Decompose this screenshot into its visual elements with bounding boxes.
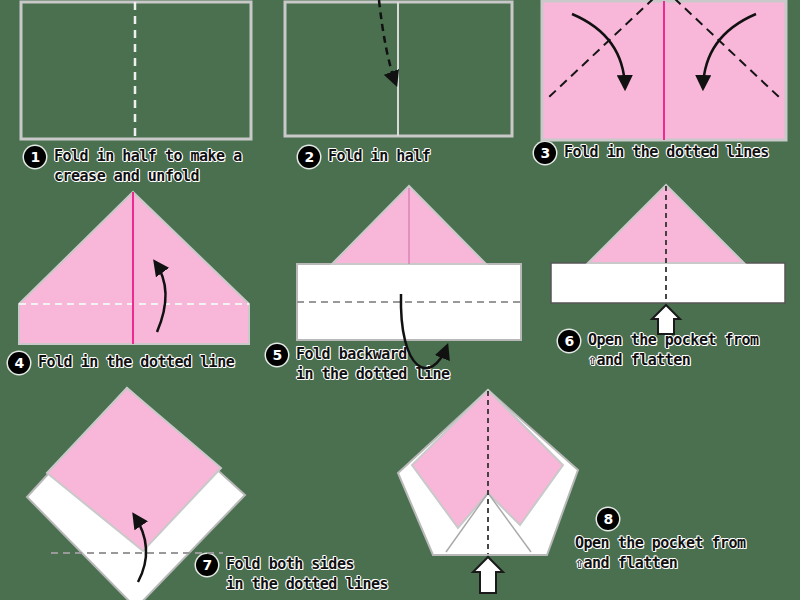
white-band [551, 263, 785, 303]
step-5-diagram [283, 182, 533, 400]
origami-hat-instructions: 1 Fold in half to make a crease and unfo… [0, 0, 800, 600]
step-2-label: 2 Fold in half [298, 146, 430, 168]
step-8-diagram [390, 386, 602, 600]
step-6-diagram [545, 182, 795, 340]
step-6-line-2: ⇧and flatten [588, 350, 759, 370]
open-pocket-arrow-icon [473, 557, 503, 593]
step-1-diagram [18, 0, 254, 146]
step-7-diagram [15, 386, 265, 600]
open-pocket-arrow-icon [652, 305, 680, 334]
step-1-text: Fold in half to make a crease and unfold [54, 146, 242, 186]
step-2-text: Fold in half [328, 146, 430, 166]
step-1-line-2: crease and unfold [54, 166, 242, 186]
fold-arrow-icon [379, 0, 396, 84]
step-1-line-1: Fold in half to make a [54, 146, 242, 166]
step-2-badge: 2 [298, 146, 320, 168]
step-1-badge: 1 [24, 146, 46, 168]
step-4-diagram [12, 186, 264, 358]
step-1-label: 1 Fold in half to make a crease and unfo… [24, 146, 242, 186]
step-3-diagram [538, 0, 792, 148]
step-2-diagram [282, 0, 514, 142]
